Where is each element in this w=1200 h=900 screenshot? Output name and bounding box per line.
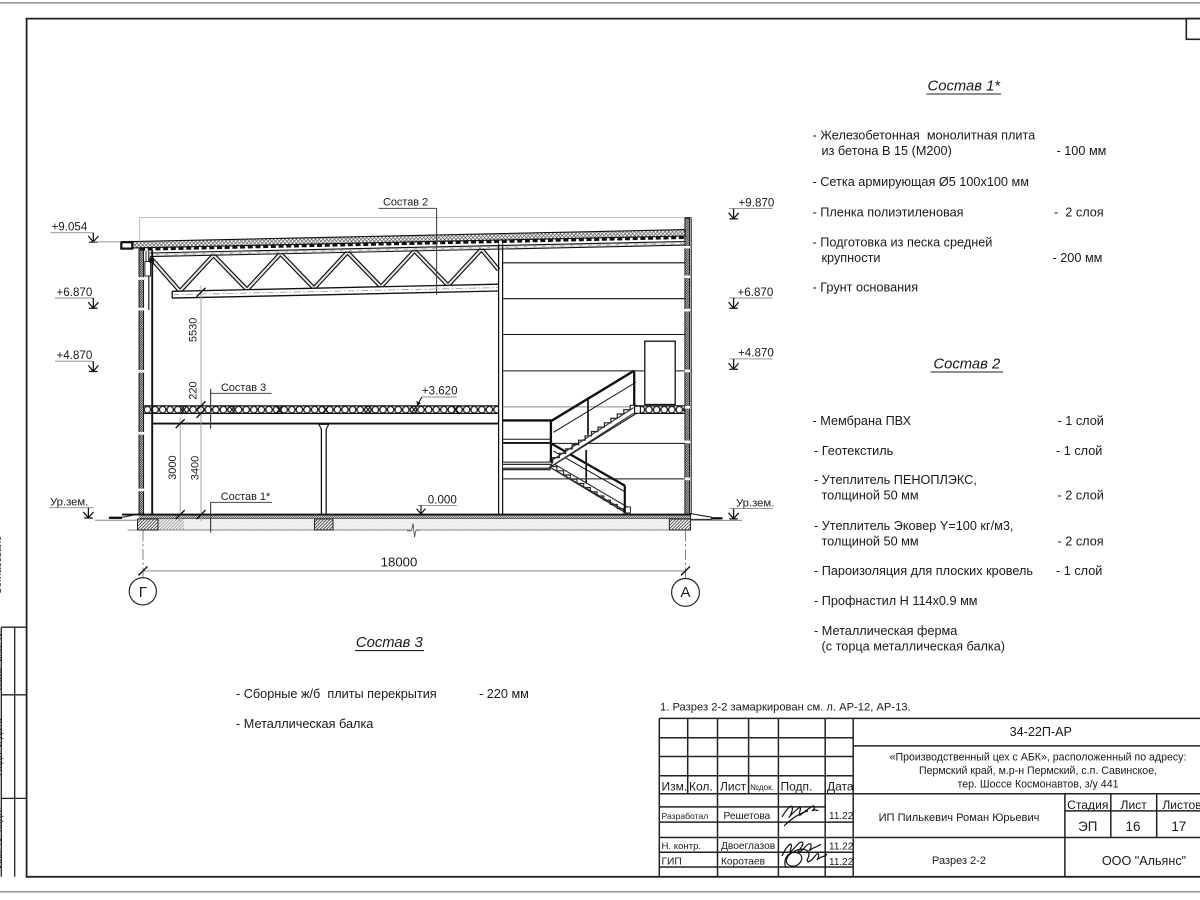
svg-text:Дата: Дата [827, 779, 854, 793]
svg-text:Состав 2: Состав 2 [383, 197, 428, 209]
svg-text:Листов: Листов [1162, 798, 1200, 812]
svg-text:Решетова: Решетова [724, 811, 771, 822]
svg-text:0.000: 0.000 [428, 493, 457, 506]
svg-text:- 1 слой: - 1 слой [1058, 414, 1104, 428]
svg-text:Изм.: Изм. [662, 779, 688, 793]
svg-text:- 200 мм: - 200 мм [1053, 251, 1103, 265]
svg-text:- Сборные ж/б плиты перекрыти: - Сборные ж/б плиты перекрытия [236, 687, 437, 701]
svg-text:№док.: №док. [750, 783, 774, 792]
svg-text:- Подготовка из песка средней: - Подготовка из песка средней [813, 235, 993, 249]
svg-text:- Мембрана ПВХ: - Мембрана ПВХ [813, 414, 912, 428]
svg-text:- Пароизоляция для плоских кро: - Пароизоляция для плоских кровель [814, 564, 1033, 578]
svg-text:- Грунт основания: - Грунт основания [813, 280, 919, 294]
svg-text:+6.870: +6.870 [57, 286, 93, 299]
svg-text:Лист: Лист [720, 779, 747, 793]
svg-text:- 1 слой: - 1 слой [1056, 444, 1102, 458]
svg-text:11.22: 11.22 [829, 857, 854, 868]
svg-text:Г: Г [139, 584, 147, 601]
svg-text:Подп. и дата: Подп. и дата [0, 718, 5, 776]
svg-text:«Производственный цех с АБК»,: «Производственный цех с АБК», расположен… [890, 752, 1187, 764]
svg-text:3000: 3000 [167, 455, 179, 479]
svg-text:ООО "Альянс": ООО "Альянс" [1102, 854, 1186, 868]
svg-text:крупности: крупности [822, 251, 881, 265]
svg-text:Пермский край, м.р-н Пермский,: Пермский край, м.р-н Пермский, с.п. Сави… [919, 765, 1157, 777]
svg-text:+9.870: +9.870 [739, 196, 775, 209]
svg-text:- 100 мм: - 100 мм [1057, 144, 1107, 158]
svg-text:- Металлическая ферма: - Металлическая ферма [814, 624, 958, 638]
svg-text:- Железобетонная монолитная п: - Железобетонная монолитная плита [813, 128, 1037, 142]
svg-text:16: 16 [1126, 819, 1141, 834]
svg-text:- Утеплитель Эковер Y=100 кг/м: - Утеплитель Эковер Y=100 кг/м3, [814, 519, 1013, 533]
svg-text:ИП Пилькевич Роман Юрьевич: ИП Пилькевич Роман Юрьевич [879, 812, 1040, 824]
svg-text:1. Разрез 2-2 замаркирован см.: 1. Разрез 2-2 замаркирован см. л. АР-12,… [660, 701, 911, 713]
svg-text:34-22П-АР: 34-22П-АР [1010, 725, 1072, 739]
svg-text:11.22: 11.22 [829, 811, 854, 822]
svg-text:Состав 2: Состав 2 [933, 357, 1001, 373]
svg-text:- 2 слоя: - 2 слоя [1058, 534, 1104, 548]
svg-text:Ур.зем.: Ур.зем. [736, 497, 774, 509]
svg-text:ЭП: ЭП [1078, 819, 1097, 834]
svg-text:(с торца металлическая балка): (с торца металлическая балка) [822, 639, 1006, 653]
svg-text:Кол.: Кол. [689, 779, 713, 793]
svg-text:- Профнастил Н 114х0.9 мм: - Профнастил Н 114х0.9 мм [814, 594, 978, 608]
svg-text:- Пленка полиэтиленовая: - Пленка полиэтиленовая [813, 205, 964, 219]
svg-text:- 2 слой: - 2 слой [1058, 488, 1104, 502]
svg-text:- Утеплитель ПЕНОПЛЭКС,: - Утеплитель ПЕНОПЛЭКС, [814, 473, 977, 487]
svg-text:Н. контр.: Н. контр. [662, 841, 702, 852]
svg-text:из бетона В 15 (М200): из бетона В 15 (М200) [822, 144, 952, 158]
svg-text:Подп.: Подп. [781, 779, 813, 793]
svg-text:Разрез 2-2: Разрез 2-2 [932, 855, 986, 867]
svg-text:Состав 3: Состав 3 [356, 635, 424, 651]
svg-text:Состав 1*: Состав 1* [221, 491, 271, 503]
svg-text:Взам. инв. №: Взам. инв. № [0, 630, 5, 691]
svg-text:Ур.зем.: Ур.зем. [50, 496, 88, 508]
svg-text:толщиной 50 мм: толщиной 50 мм [822, 488, 919, 502]
svg-text:+4.870: +4.870 [738, 347, 774, 360]
svg-text:Двоеглазов: Двоеглазов [721, 841, 775, 852]
svg-text:толщиной 50 мм: толщиной 50 мм [822, 534, 919, 548]
svg-text:220: 220 [188, 381, 200, 399]
svg-text:3400: 3400 [189, 456, 201, 480]
svg-text:11.22: 11.22 [829, 841, 854, 852]
svg-text:Коротаев: Коротаев [721, 856, 765, 867]
svg-text:+4.870: +4.870 [57, 349, 93, 362]
svg-text:ГИП: ГИП [662, 856, 682, 867]
svg-text:тер. Шоссе Космонавтов, з/у 44: тер. Шоссе Космонавтов, з/у 441 [958, 779, 1119, 791]
svg-text:5530: 5530 [187, 318, 199, 342]
svg-text:- Геотекстиль: - Геотекстиль [814, 444, 894, 458]
svg-text:- 2 слоя: - 2 слоя [1054, 205, 1104, 219]
svg-text:Состав 1*: Состав 1* [928, 79, 1002, 95]
svg-text:Стадия: Стадия [1067, 798, 1108, 812]
svg-text:- Сетка армирующая Ø5 100х100: - Сетка армирующая Ø5 100х100 мм [813, 175, 1029, 189]
svg-text:18000: 18000 [381, 554, 418, 569]
svg-text:+6.870: +6.870 [738, 286, 774, 299]
svg-text:- Металлическая балка: - Металлическая балка [236, 717, 374, 731]
svg-text:+9.054: +9.054 [52, 221, 88, 234]
svg-text:А: А [680, 584, 690, 601]
svg-text:- 220 мм: - 220 мм [479, 687, 529, 701]
svg-text:Лист: Лист [1121, 798, 1148, 812]
svg-text:Согласовано: Согласовано [0, 535, 4, 594]
svg-text:+3.620: +3.620 [422, 385, 458, 398]
svg-text:Состав 3: Состав 3 [221, 382, 266, 394]
svg-text:17: 17 [1171, 819, 1186, 834]
svg-text:- 1 слой: - 1 слой [1056, 564, 1102, 578]
svg-text:Инв. № подл.: Инв. № подл. [0, 807, 5, 868]
svg-text:Разработал: Разработал [662, 811, 709, 821]
